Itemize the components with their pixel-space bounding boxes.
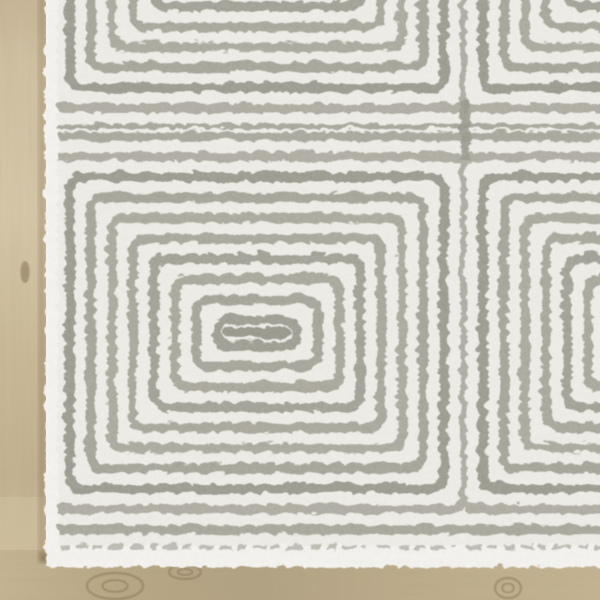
rug-pile-highlights [56,0,600,543]
wood-knot-left [21,261,30,283]
rug-product-photo [0,0,600,600]
scene-svg [0,0,600,600]
rug [0,0,600,568]
